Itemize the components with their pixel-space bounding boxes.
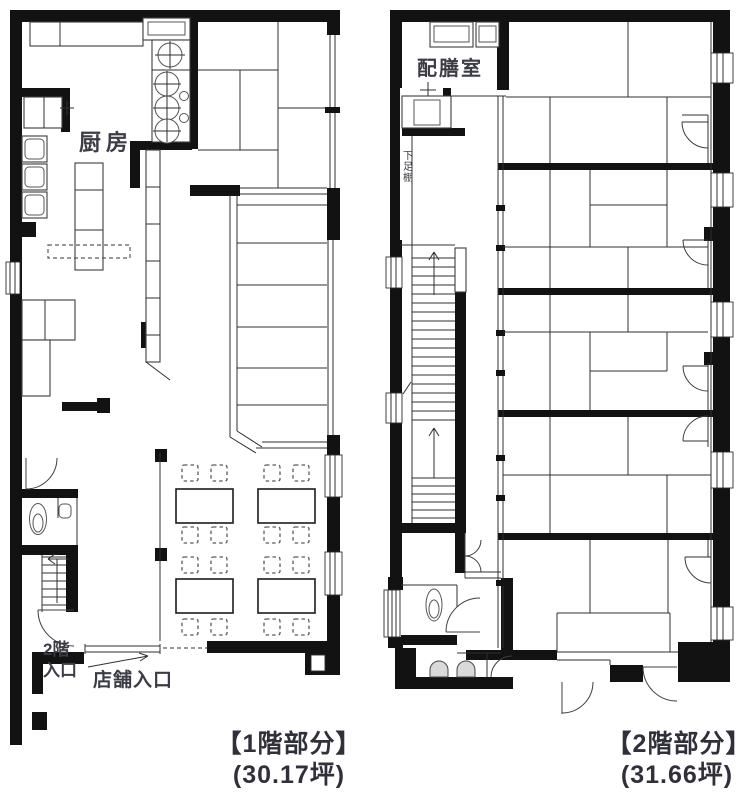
hand-sink — [59, 504, 71, 518]
floor2-caption-area: (31.66坪) — [621, 761, 733, 789]
chairs — [182, 465, 309, 635]
floor1-store-entrance — [85, 644, 207, 667]
stair-direction-arrow — [48, 554, 68, 603]
upstairs-entrance-label-line1: 2階 — [43, 640, 69, 659]
sliding-door — [240, 188, 327, 194]
table — [176, 579, 233, 613]
stair-arrow-up — [429, 428, 439, 478]
store-entrance-label: 店舗入口 — [93, 668, 173, 691]
double-door-swing — [465, 533, 481, 578]
floor2-entrance — [557, 652, 678, 714]
room-divider — [498, 288, 728, 295]
door-swing — [683, 416, 708, 441]
floor1-tables-and-chairs — [176, 465, 315, 635]
entrance-door-swing — [643, 667, 677, 701]
door-swing — [683, 240, 708, 265]
door-swing — [26, 458, 57, 489]
island-counter — [48, 163, 130, 270]
room-divider — [498, 410, 728, 417]
floor2-plan: 配膳室 下足棚 【2階部分】 (31.66坪) — [384, 10, 745, 789]
floor1-tatami-room — [198, 22, 327, 194]
kitchen-cabinets — [22, 300, 75, 396]
stair-treads — [237, 205, 327, 405]
floor1-plan: 厨房 2階 入口 店舗入口 【1階部分】 (30.17坪) — [6, 10, 361, 789]
door-swing — [685, 557, 711, 583]
door-swing — [682, 122, 708, 148]
floor1-caption-area: (30.17坪) — [233, 761, 345, 789]
door-swing — [446, 598, 480, 632]
upstairs-entrance-label-line2: 入口 — [43, 661, 77, 680]
floor2-caption-title: 【2階部分】 — [607, 729, 745, 758]
stair-treads — [412, 478, 455, 518]
shoe-rack-label: 下足棚 — [401, 150, 413, 183]
door-swing — [683, 366, 708, 391]
service-counter — [146, 150, 170, 380]
stove — [152, 40, 190, 143]
entrance-arrow — [88, 653, 148, 667]
floor1-staircase — [230, 195, 327, 453]
sliding-entrance-door — [85, 644, 160, 654]
table — [176, 489, 233, 523]
floor1-wc — [26, 458, 77, 545]
sinks — [22, 136, 47, 218]
room-divider — [498, 533, 728, 540]
urinal — [430, 661, 448, 677]
floor2-windows — [384, 53, 733, 640]
urinal — [457, 661, 475, 677]
floorplan-drawing: 厨房 2階 入口 店舗入口 【1階部分】 (30.17坪) — [0, 0, 745, 800]
entrance-door-swing — [562, 682, 593, 714]
table — [258, 489, 315, 523]
table — [258, 579, 315, 613]
floorplan-page: 厨房 2階 入口 店舗入口 【1階部分】 (30.17坪) — [0, 0, 745, 800]
floor2-corridor — [496, 96, 505, 648]
floor1-caption-title: 【1階部分】 — [217, 729, 362, 758]
floor1-kitchen-equipment — [22, 18, 190, 396]
floor2-tatami-rooms — [503, 22, 711, 652]
kitchen-label: 厨房 — [79, 130, 133, 155]
serving-room-label: 配膳室 — [417, 56, 483, 80]
room-divider — [498, 163, 728, 170]
